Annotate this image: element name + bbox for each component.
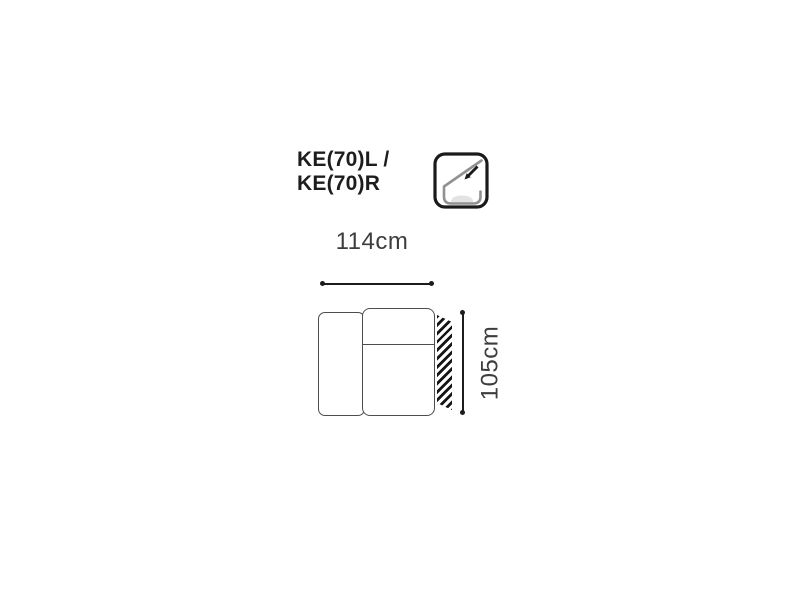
dimension-endpoint-dot	[429, 281, 434, 286]
backrest-divider-line	[363, 344, 434, 345]
height-dimension-label: 105cm	[476, 325, 504, 400]
diagram-canvas: KE(70)L / KE(70)R 114cm 105cm	[0, 0, 800, 600]
dimension-endpoint-dot	[320, 281, 325, 286]
width-dimension-line	[322, 283, 432, 285]
product-code-title: KE(70)L / KE(70)R	[297, 148, 389, 196]
sofa-armrest-outline	[318, 312, 365, 416]
product-code-line2: KE(70)R	[297, 172, 389, 196]
dimension-endpoint-dot	[460, 410, 465, 415]
dimension-endpoint-dot	[460, 310, 465, 315]
height-dimension-label-wrap: 105cm	[468, 312, 512, 413]
height-dimension-line	[462, 312, 464, 413]
sofa-seat-outline	[362, 308, 435, 416]
recline-backrest-icon	[433, 152, 489, 209]
product-code-line1: KE(70)L /	[297, 148, 389, 172]
wall-hatch-pattern	[437, 315, 452, 410]
width-dimension-label: 114cm	[317, 228, 427, 256]
